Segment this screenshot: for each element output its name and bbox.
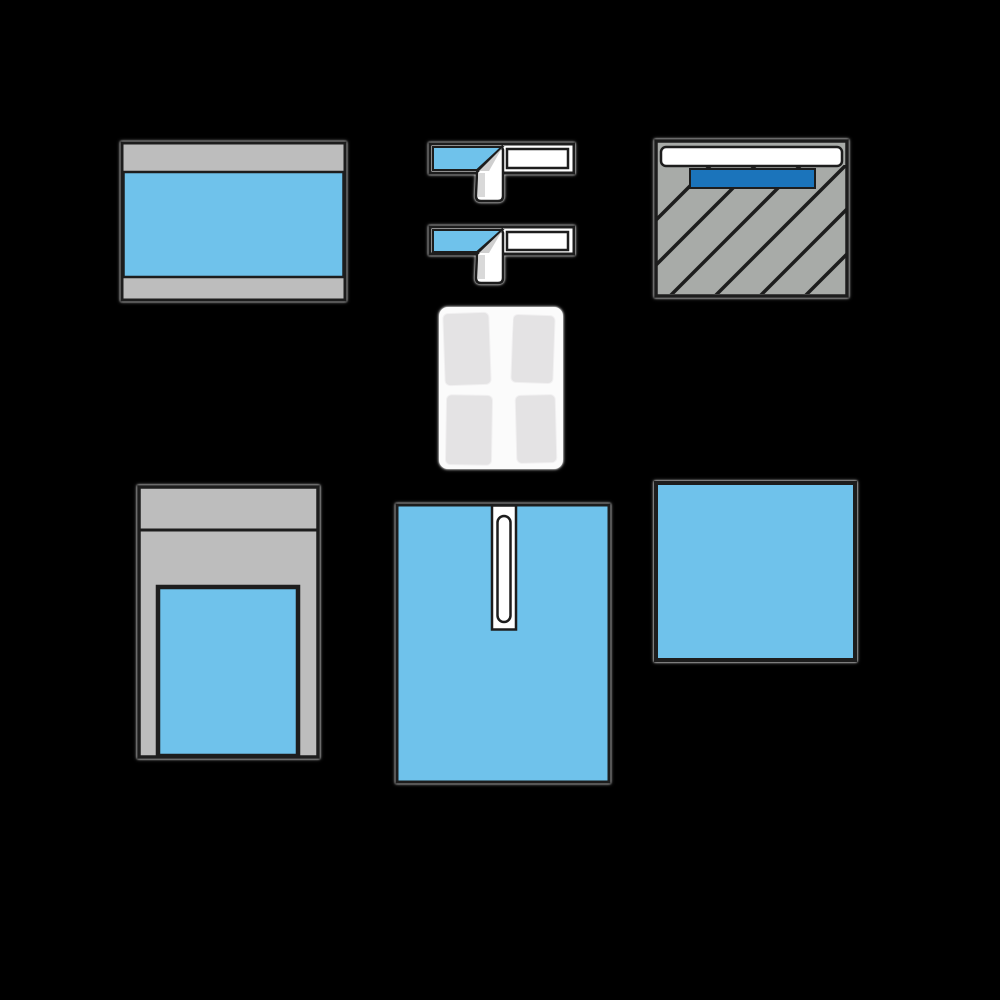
tape-flap-inner-shade [478, 255, 485, 279]
incise-film-strip [690, 169, 815, 188]
slit-opening [498, 516, 511, 622]
plain-drape-body [656, 483, 855, 660]
gauze-pad-bottom-left [445, 395, 492, 466]
adhesive-tape-strip-2 [423, 218, 575, 290]
hatched-drape-with-film-strip [650, 136, 850, 304]
tape-backing-window [507, 232, 568, 250]
adhesive-tape-strip-1 [423, 136, 575, 208]
cover-with-window [134, 482, 324, 764]
slit-drape [392, 499, 614, 789]
folded-drape-with-band-edges [118, 139, 350, 305]
gauze-pad-top-left [443, 312, 491, 386]
product-grid [0, 0, 1000, 1000]
tape-flap-inner-shade [478, 173, 485, 197]
gauze-pad-bottom-right [515, 394, 557, 463]
drape-header-bar [661, 147, 842, 166]
drape-blue-body [124, 172, 344, 277]
gauze-swab-stack [432, 298, 572, 478]
plain-drape [650, 478, 862, 668]
cover-blue-window [158, 587, 298, 756]
gauze-pad-top-right [511, 314, 555, 383]
tape-backing-window [507, 149, 568, 168]
